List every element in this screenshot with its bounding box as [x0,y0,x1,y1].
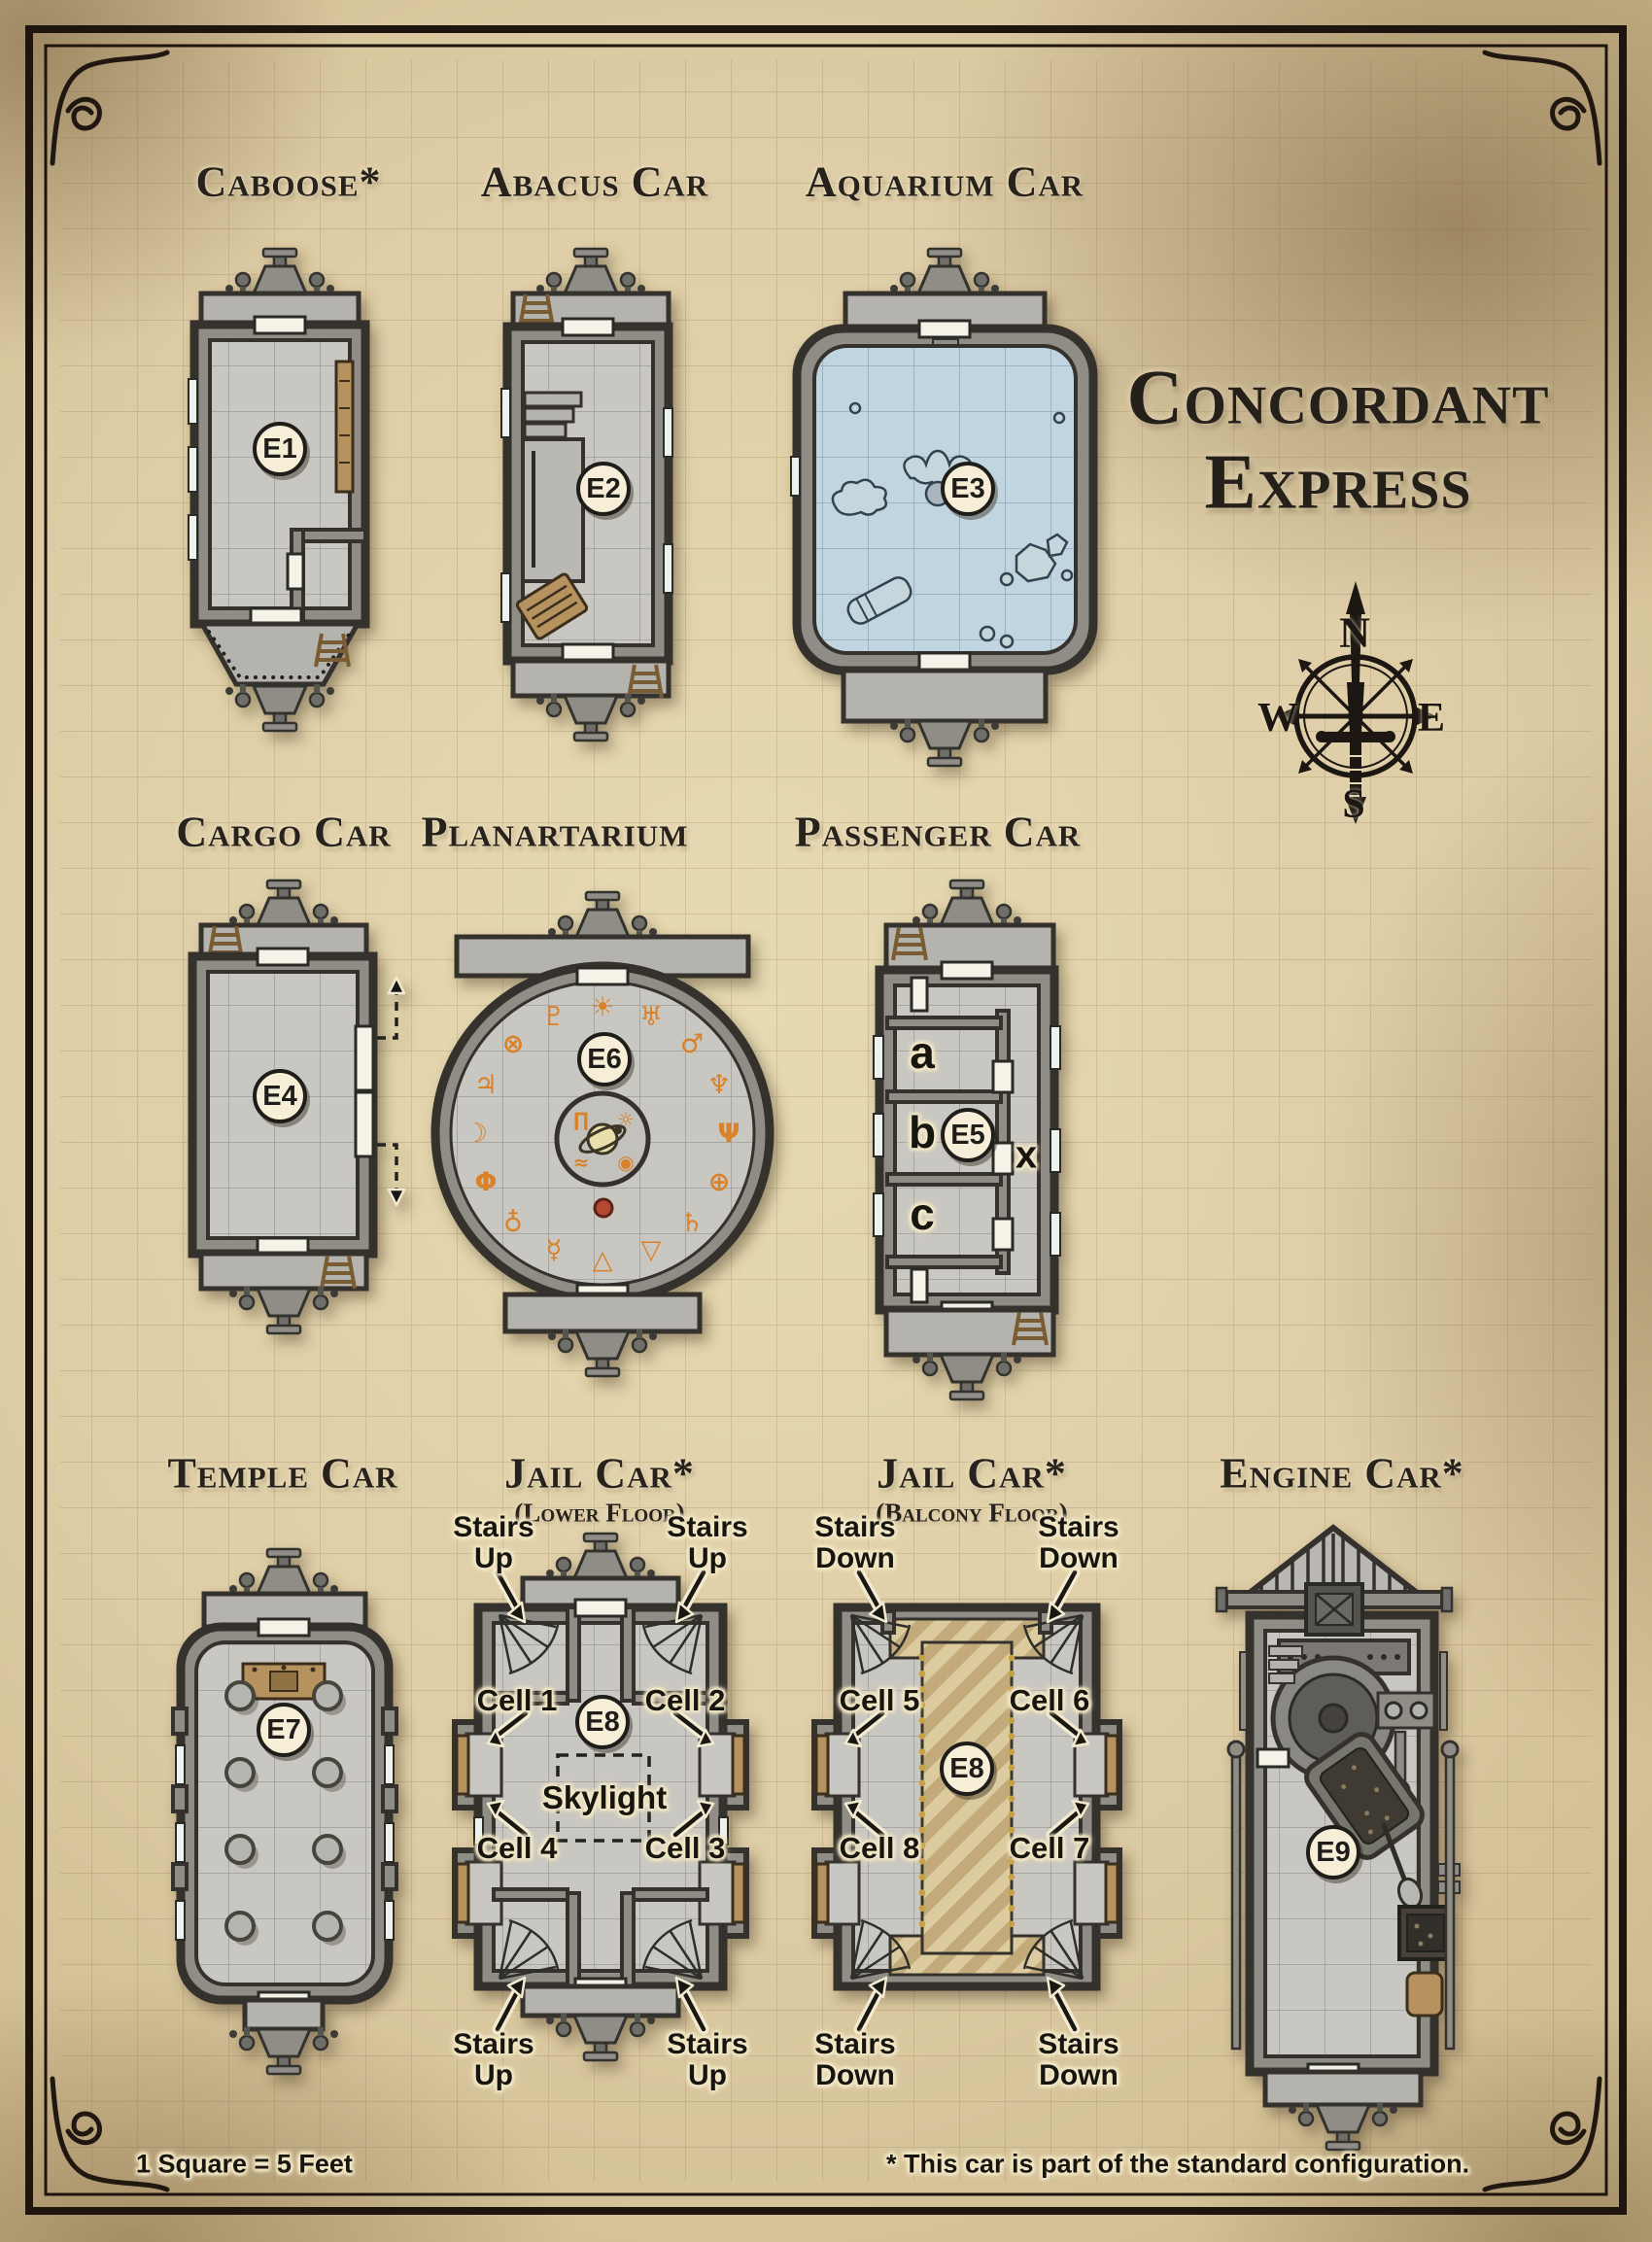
planar-symbol: ⊕ [708,1167,731,1197]
cell-door [1106,1736,1118,1794]
planar-symbol: ☀ [591,992,614,1022]
planar-symbol: ♇ [542,1002,566,1032]
concordant-express-map: .w{fill:#8f8d86;stroke:#34332e;stroke-wi… [0,0,1652,2242]
planar-symbol: ◉ [617,1151,634,1174]
planar-symbol: ♁ [503,1208,523,1238]
map-artwork: .w{fill:#8f8d86;stroke:#34332e;stroke-wi… [0,0,1652,2242]
car-jail-lower-art [455,1534,746,2060]
sack [1407,1973,1442,2016]
planar-symbol: ♃ [474,1070,498,1100]
car-jail-balcony-art [814,1607,1119,1986]
planar-symbol: ♆ [707,1070,731,1100]
car-temple-art [173,1549,396,2074]
planar-symbol: ♂ [680,1029,704,1059]
cell-door [1106,1864,1118,1922]
car-abacus-art [501,249,672,741]
planar-symbol: ≈ [573,1151,590,1174]
planar-symbol: ∏ [573,1108,589,1131]
planar-symbol: Φ [475,1167,498,1197]
red-marker-dot [595,1199,612,1217]
cell-door [733,1864,744,1922]
planar-symbol: △ [593,1245,613,1275]
planar-symbol: ♄ [680,1208,704,1238]
cell-door [733,1736,744,1794]
cell-door [457,1864,468,1922]
planar-symbol: ⊗ [502,1029,525,1059]
car-engine-art [1217,1528,1460,2150]
cell-door [816,1864,828,1922]
planar-symbol: ☽ [465,1119,488,1149]
car-passenger-art [874,880,1060,1399]
cell-door [816,1736,828,1794]
planar-symbol: Ψ [718,1119,740,1149]
planar-symbol: ☿ [546,1235,563,1265]
planar-symbol: ♅ [639,1002,663,1032]
cell-door [457,1736,468,1794]
planar-symbol: ▽ [641,1235,662,1265]
